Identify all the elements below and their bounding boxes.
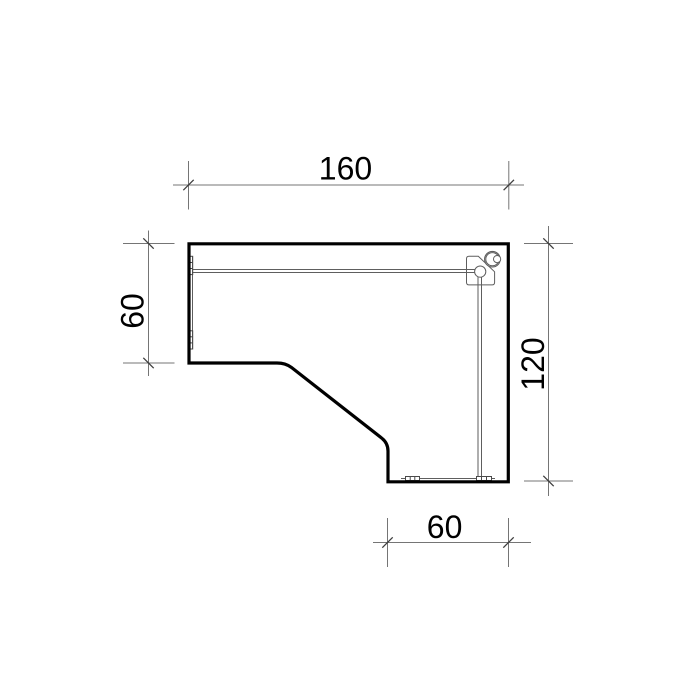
svg-text:60: 60 — [115, 293, 151, 329]
svg-text:160: 160 — [319, 151, 372, 187]
svg-text:120: 120 — [515, 337, 551, 390]
svg-text:60: 60 — [427, 509, 463, 545]
